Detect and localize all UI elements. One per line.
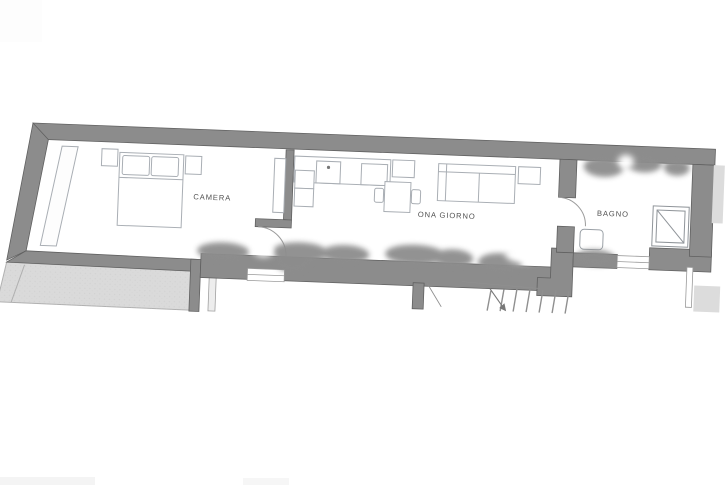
kitchen-shelf-lower xyxy=(294,188,314,207)
kitchen-shelf-upper xyxy=(295,170,315,189)
wall-terrace-right xyxy=(189,259,201,311)
pillow-left xyxy=(122,155,150,175)
bathroom-fixtures xyxy=(580,203,690,253)
label-camera: CAMERA xyxy=(193,192,231,202)
scan-artifact-bottomleft xyxy=(0,477,95,485)
wall-right xyxy=(689,164,715,257)
exterior-wall-lines-right xyxy=(685,267,693,307)
wall-giorno-bagno-lower xyxy=(556,226,574,253)
bed xyxy=(117,152,184,227)
terrace-stair-railing xyxy=(208,277,216,311)
stair-step xyxy=(526,289,530,312)
chair-right xyxy=(411,190,421,204)
scan-artifact-bottom xyxy=(243,478,289,485)
sofa xyxy=(437,164,515,204)
nightstand-right xyxy=(185,156,202,175)
white-smudge xyxy=(253,243,274,258)
floor-plan-image: CAMERA ONA GIORNO BAGNO xyxy=(0,0,726,485)
pillow-right xyxy=(151,157,179,177)
nightstand-left xyxy=(101,149,118,167)
stair-step xyxy=(487,291,491,311)
wall-giorno-bagno-upper xyxy=(559,159,577,198)
living xyxy=(437,164,540,205)
adjacent-area-right xyxy=(712,165,725,223)
kitchen-cabinet xyxy=(392,160,415,178)
kitchen-cooktop xyxy=(361,164,388,186)
chair-left xyxy=(374,188,384,202)
scan-artifact-topleft xyxy=(0,0,42,42)
adjacent-area-bottomright xyxy=(693,286,720,313)
stair-direction-arrow xyxy=(489,289,507,312)
side-table xyxy=(518,167,541,185)
wardrobe xyxy=(40,145,78,246)
dining xyxy=(374,181,421,213)
dining-table xyxy=(384,182,411,213)
label-zona-giorno: ONA GIORNO xyxy=(418,210,476,221)
closet-camera xyxy=(273,158,286,212)
wall-stub-stairs xyxy=(412,283,424,309)
toilet xyxy=(580,229,604,250)
floor-plan-page: CAMERA ONA GIORNO BAGNO xyxy=(0,0,726,485)
kitchen-sink xyxy=(316,161,341,184)
door-arc-bagno xyxy=(557,197,586,226)
plan-rotated-group: CAMERA ONA GIORNO BAGNO xyxy=(0,122,725,332)
stair-step xyxy=(513,289,517,312)
label-bagno: BAGNO xyxy=(597,209,629,219)
